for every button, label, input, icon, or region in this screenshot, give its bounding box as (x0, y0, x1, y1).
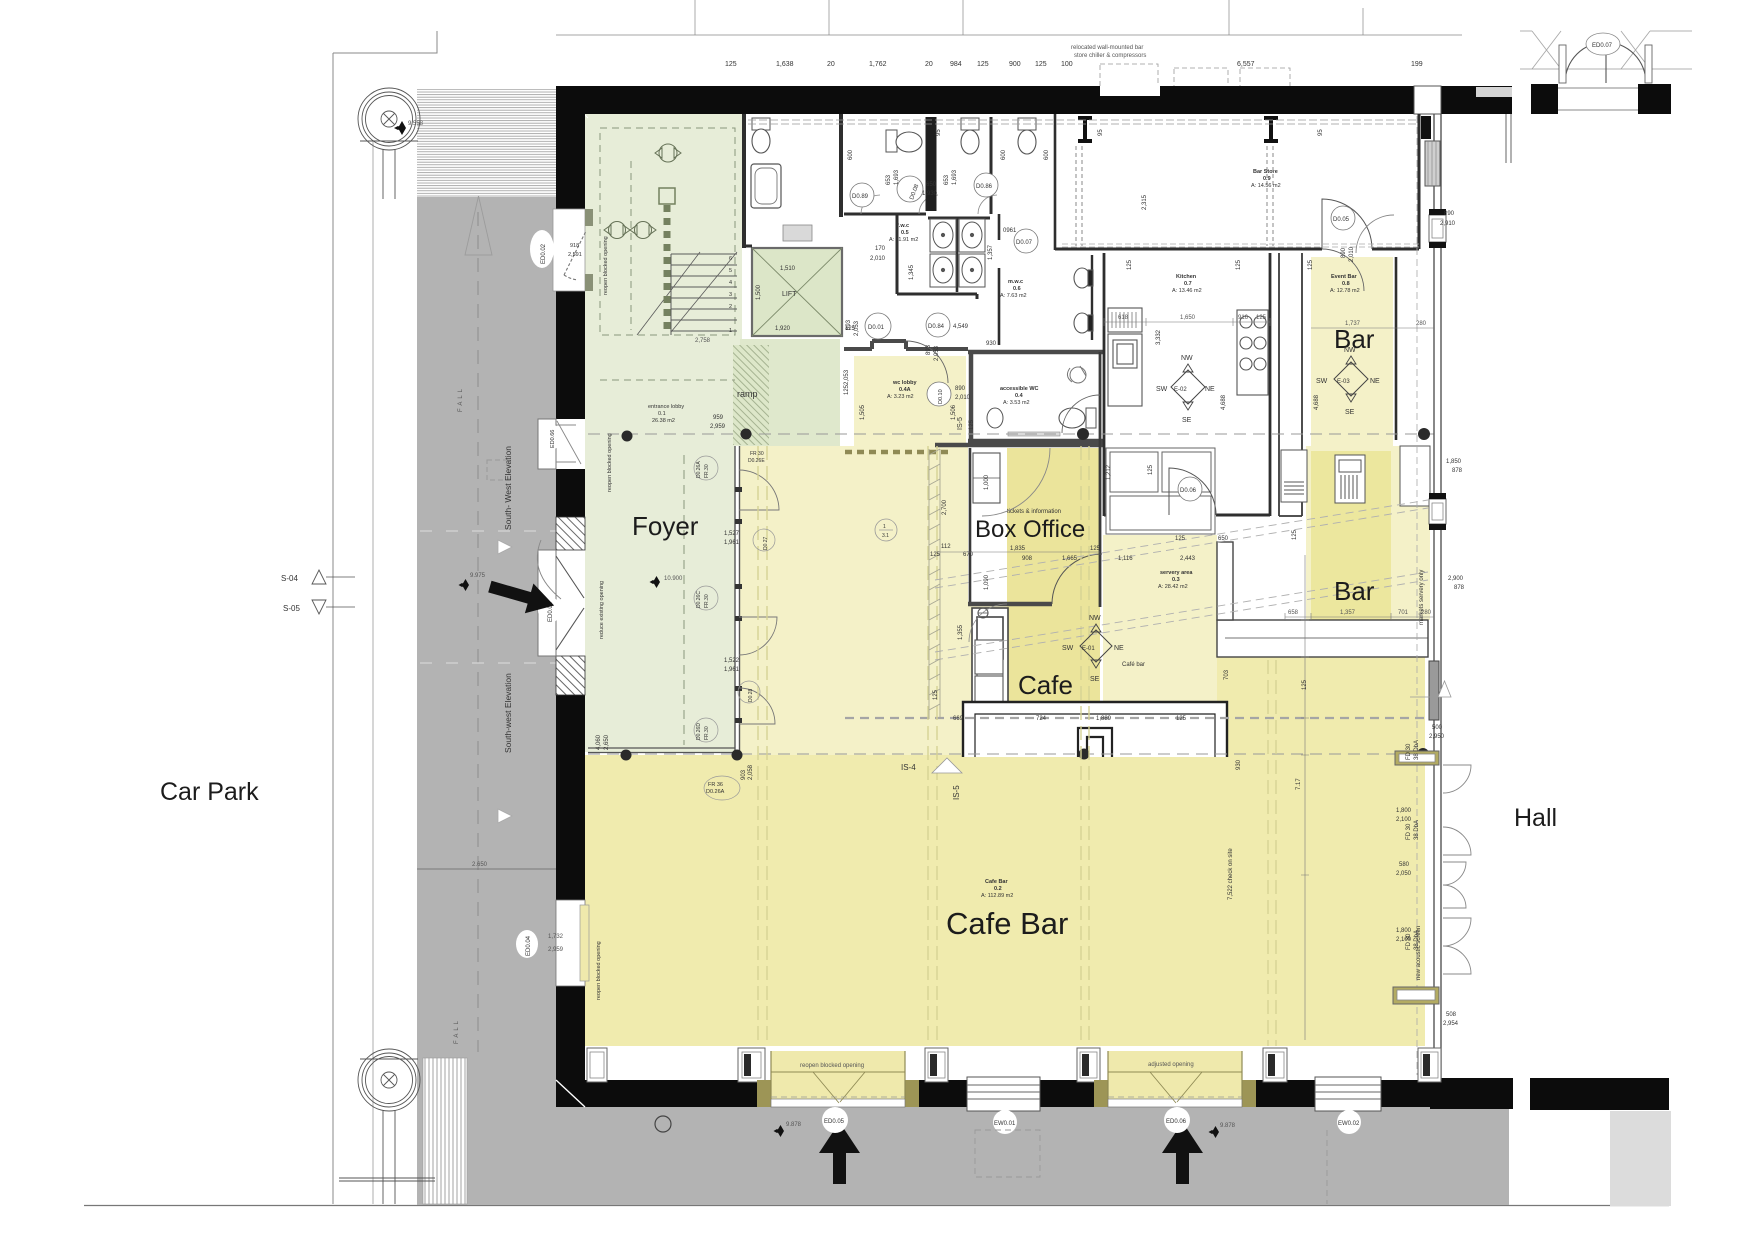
svg-text:280: 280 (1421, 610, 1432, 616)
svg-text:f.w.c: f.w.c (897, 223, 909, 229)
svg-text:2.650: 2.650 (472, 862, 488, 868)
svg-text:6: 6 (729, 256, 732, 262)
svg-text:D0.26A: D0.26A (706, 789, 725, 795)
svg-text:FR 36: FR 36 (708, 782, 723, 788)
svg-text:FALL: FALL (458, 386, 464, 412)
svg-text:890: 890 (1341, 247, 1347, 258)
svg-text:Café bar: Café bar (1122, 662, 1145, 668)
svg-text:6,557: 6,557 (1237, 61, 1255, 68)
svg-text:0.8: 0.8 (1342, 281, 1350, 287)
svg-text:IS-5: IS-5 (952, 785, 961, 800)
svg-text:2,443: 2,443 (1180, 556, 1196, 562)
svg-text:959: 959 (713, 415, 724, 421)
svg-text:1: 1 (883, 524, 886, 530)
svg-text:South-west Elevation: South-west Elevation (503, 673, 513, 753)
svg-text:entrance lobby: entrance lobby (648, 404, 684, 410)
svg-text:95: 95 (1098, 129, 1104, 136)
svg-text:A: 11.91 m2: A: 11.91 m2 (889, 237, 918, 243)
svg-text:280: 280 (1416, 321, 1427, 327)
svg-text:Car Park: Car Park (160, 778, 259, 806)
svg-text:2,910: 2,910 (1440, 221, 1456, 227)
svg-text:ED0.07: ED0.07 (1592, 43, 1613, 49)
svg-text:D0.89: D0.89 (852, 194, 869, 200)
svg-text:724: 724 (1036, 716, 1047, 722)
svg-text:S-04: S-04 (281, 574, 298, 583)
svg-text:10.900: 10.900 (664, 576, 683, 582)
svg-text:D0.06: D0.06 (1180, 488, 1197, 494)
svg-text:ED0.02: ED0.02 (541, 243, 547, 264)
svg-text:reduce existing opening: reduce existing opening (599, 581, 605, 639)
svg-text:0.1: 0.1 (658, 411, 666, 417)
svg-text:38 DbA: 38 DbA (1414, 820, 1420, 840)
svg-text:2,650: 2,650 (604, 734, 610, 750)
svg-text:E-02: E-02 (1174, 387, 1187, 393)
svg-text:125: 125 (1236, 259, 1242, 270)
svg-text:0.6: 0.6 (1013, 286, 1021, 292)
svg-text:D0.26A: D0.26A (696, 461, 702, 478)
svg-text:A: 7.63 m2: A: 7.63 m2 (1000, 293, 1027, 299)
svg-text:S-05: S-05 (283, 604, 300, 613)
svg-text:658: 658 (1288, 610, 1299, 616)
svg-text:500: 500 (1432, 725, 1443, 731)
svg-text:FR.30: FR.30 (704, 726, 710, 740)
svg-text:1,650: 1,650 (1180, 315, 1196, 321)
svg-text:new acoustic screen: new acoustic screen (1416, 926, 1422, 980)
svg-text:1,930: 1,930 (922, 191, 938, 197)
svg-text:4,060: 4,060 (596, 734, 602, 750)
svg-text:4: 4 (729, 280, 732, 286)
svg-text:EW0.02: EW0.02 (1338, 1121, 1360, 1127)
svg-text:878: 878 (1452, 468, 1463, 474)
svg-text:E-01: E-01 (1082, 646, 1095, 652)
svg-text:NW: NW (1344, 347, 1356, 354)
svg-text:wc lobby: wc lobby (892, 380, 917, 386)
svg-text:125: 125 (1292, 529, 1298, 540)
svg-text:A: 12.78 m2: A: 12.78 m2 (1330, 288, 1360, 294)
svg-text:1,500: 1,500 (756, 284, 762, 300)
svg-text:FR 30: FR 30 (750, 451, 764, 457)
svg-text:A: 3.53 m2: A: 3.53 m2 (1003, 400, 1030, 406)
svg-text:1,920: 1,920 (775, 326, 791, 332)
svg-text:Bar: Bar (1334, 576, 1375, 606)
svg-text:NE: NE (1370, 378, 1380, 385)
svg-text:0.4A: 0.4A (899, 387, 911, 393)
svg-text:9.878: 9.878 (786, 1122, 802, 1128)
svg-text:1,800: 1,800 (1396, 808, 1412, 814)
svg-text:reopen blocked opening: reopen blocked opening (800, 1063, 864, 1069)
svg-text:2,959: 2,959 (710, 424, 726, 430)
svg-text:D0.01: D0.01 (868, 325, 885, 331)
svg-text:650: 650 (926, 182, 937, 188)
svg-text:D0.86: D0.86 (976, 184, 993, 190)
svg-text:125: 125 (930, 552, 941, 558)
svg-text:125: 125 (977, 61, 989, 68)
svg-text:SW: SW (1062, 645, 1074, 652)
svg-text:SE: SE (1090, 676, 1100, 683)
svg-text:A: 28.42 m2: A: 28.42 m2 (1158, 584, 1188, 590)
svg-text:2,010: 2,010 (870, 256, 886, 262)
svg-text:125: 125 (933, 689, 939, 700)
svg-text:900: 900 (1009, 61, 1021, 68)
svg-text:1,506: 1,506 (951, 404, 957, 420)
svg-text:E-03: E-03 (1337, 379, 1350, 385)
svg-text:1,527: 1,527 (724, 531, 740, 537)
svg-text:703: 703 (1224, 669, 1230, 680)
svg-text:FALL: FALL (454, 1018, 460, 1044)
svg-text:FD 30: FD 30 (1406, 823, 1412, 840)
svg-text:2,758: 2,758 (695, 338, 711, 344)
svg-text:125: 125 (1176, 716, 1187, 722)
svg-text:2,900: 2,900 (1448, 576, 1464, 582)
svg-text:125: 125 (969, 419, 975, 430)
svg-text:1: 1 (729, 328, 732, 334)
svg-text:903: 903 (741, 769, 747, 780)
svg-text:servery area: servery area (1160, 570, 1193, 576)
svg-text:7,522 check on site: 7,522 check on site (1228, 848, 1234, 900)
svg-text:600: 600 (1001, 149, 1007, 160)
svg-text:2,058: 2,058 (748, 764, 754, 780)
svg-text:Cafe Bar: Cafe Bar (985, 879, 1008, 885)
svg-text:1,693: 1,693 (952, 169, 958, 185)
svg-text:Bar Store: Bar Store (1253, 169, 1278, 175)
svg-text:D0.26D: D0.26D (696, 723, 702, 740)
svg-text:125: 125 (1308, 259, 1314, 270)
svg-text:D0.84: D0.84 (928, 324, 945, 330)
svg-text:95: 95 (936, 129, 942, 136)
svg-text:0961: 0961 (1003, 228, 1017, 234)
svg-text:1,116: 1,116 (1118, 556, 1133, 562)
svg-text:Cafe: Cafe (1018, 670, 1073, 700)
svg-text:893: 893 (846, 319, 852, 330)
svg-text:916: 916 (1238, 315, 1249, 321)
svg-text:890: 890 (1444, 211, 1455, 217)
svg-text:1,000: 1,000 (984, 474, 990, 490)
svg-text:NE: NE (1114, 645, 1124, 652)
svg-text:IS-4: IS-4 (901, 763, 916, 772)
svg-text:125: 125 (1148, 464, 1154, 475)
svg-text:SE: SE (1182, 417, 1192, 424)
svg-text:A: 14.56 m2: A: 14.56 m2 (1251, 183, 1281, 189)
svg-text:m.w.c: m.w.c (1008, 279, 1023, 285)
svg-text:5: 5 (729, 268, 732, 274)
svg-text:26.38 m2: 26.38 m2 (652, 418, 675, 424)
svg-text:relocated wall-mounted bar: relocated wall-mounted bar (1071, 45, 1143, 51)
svg-text:Event Bar: Event Bar (1331, 274, 1358, 280)
svg-text:Box Office: Box Office (975, 516, 1085, 543)
svg-text:1,961: 1,961 (724, 667, 740, 673)
svg-text:1,505: 1,505 (860, 404, 866, 420)
svg-text:170: 170 (875, 246, 886, 252)
svg-text:125: 125 (725, 61, 737, 68)
svg-text:1,732: 1,732 (548, 934, 564, 940)
svg-text:1,961: 1,961 (724, 540, 740, 546)
svg-text:NE: NE (1205, 386, 1215, 393)
svg-text:95: 95 (1318, 129, 1324, 136)
svg-text:FR.30: FR.30 (704, 464, 710, 478)
svg-text:NW: NW (1181, 355, 1193, 362)
svg-text:ramp: ramp (737, 389, 758, 399)
svg-text:984: 984 (950, 61, 962, 68)
svg-text:930: 930 (1236, 759, 1242, 770)
svg-text:accessible WC: accessible WC (1000, 386, 1039, 392)
svg-text:701: 701 (1398, 610, 1409, 616)
svg-text:4,549: 4,549 (953, 324, 969, 330)
svg-text:9.558: 9.558 (408, 121, 424, 127)
svg-text:D0.07: D0.07 (1016, 240, 1033, 246)
svg-text:EW0.01: EW0.01 (994, 1121, 1016, 1127)
svg-text:1,355: 1,355 (958, 624, 964, 640)
svg-text:0.7: 0.7 (1184, 281, 1192, 287)
svg-text:908: 908 (1022, 556, 1033, 562)
svg-text:2,010: 2,010 (955, 395, 971, 401)
svg-text:893: 893 (926, 344, 932, 355)
svg-text:2: 2 (729, 304, 732, 310)
svg-text:38 DbA: 38 DbA (1414, 740, 1420, 760)
svg-text:NW: NW (1089, 615, 1101, 622)
svg-text:1,737: 1,737 (1345, 321, 1361, 327)
svg-text:South- West Elevation: South- West Elevation (503, 446, 513, 530)
svg-text:1,693: 1,693 (894, 169, 900, 185)
svg-text:reopen blocked opening: reopen blocked opening (607, 433, 613, 492)
svg-text:D0.27: D0.27 (763, 536, 769, 550)
svg-text:1,357: 1,357 (988, 244, 994, 260)
svg-text:0.3: 0.3 (1172, 577, 1180, 583)
svg-text:3,332: 3,332 (1156, 329, 1162, 345)
svg-text:Hall: Hall (1514, 804, 1557, 832)
svg-text:SW: SW (1156, 386, 1168, 393)
svg-text:FR.30: FR.30 (704, 594, 710, 608)
svg-text:2,100: 2,100 (1396, 817, 1412, 823)
svg-text:SW: SW (1316, 378, 1328, 385)
svg-text:199: 199 (1411, 61, 1423, 68)
svg-text:1,345: 1,345 (909, 264, 915, 280)
svg-text:1,357: 1,357 (1340, 610, 1356, 616)
svg-text:1,638: 1,638 (776, 61, 794, 68)
svg-text:A: 112.89 m2: A: 112.89 m2 (981, 893, 1013, 899)
svg-text:1,850: 1,850 (1446, 459, 1462, 465)
svg-text:SE: SE (1345, 409, 1355, 416)
svg-text:100: 100 (1061, 61, 1073, 68)
svg-text:670: 670 (963, 552, 974, 558)
svg-text:2,591: 2,591 (568, 252, 582, 258)
svg-text:Foyer: Foyer (632, 511, 699, 541)
svg-text:1,522: 1,522 (724, 658, 740, 664)
svg-text:2,053: 2,053 (854, 320, 860, 336)
svg-text:580: 580 (1399, 862, 1410, 868)
svg-text:4,688: 4,688 (1314, 394, 1320, 410)
svg-text:0.2: 0.2 (994, 886, 1002, 892)
svg-text:3.1: 3.1 (882, 533, 889, 539)
svg-text:2,954: 2,954 (1443, 1021, 1459, 1027)
svg-text:A: 13.46 m2: A: 13.46 m2 (1172, 288, 1202, 294)
svg-text:112: 112 (941, 544, 951, 550)
svg-text:Kitchen: Kitchen (1176, 274, 1197, 280)
svg-text:618: 618 (1118, 315, 1129, 321)
svg-text:1,510: 1,510 (780, 266, 796, 272)
svg-text:adjusted opening: adjusted opening (1148, 1062, 1194, 1068)
svg-text:reopen blocked opening: reopen blocked opening (596, 941, 602, 1000)
svg-text:669: 669 (953, 716, 964, 722)
svg-text:4,688: 4,688 (1221, 394, 1227, 410)
svg-text:1252,053: 1252,053 (844, 369, 850, 395)
svg-text:878: 878 (1454, 585, 1465, 591)
svg-text:D0.10: D0.10 (938, 389, 944, 404)
svg-text:ED0.05: ED0.05 (824, 1119, 845, 1125)
svg-text:FD 30: FD 30 (1406, 743, 1412, 760)
svg-text:125: 125 (1302, 679, 1308, 690)
svg-text:IS-5: IS-5 (957, 417, 964, 430)
svg-text:125: 125 (1175, 536, 1186, 542)
svg-text:2,315: 2,315 (1142, 194, 1148, 210)
svg-text:D0.05: D0.05 (1333, 217, 1350, 223)
svg-text:0.4: 0.4 (1015, 393, 1024, 399)
svg-text:9.975: 9.975 (470, 573, 486, 579)
svg-text:508: 508 (1446, 1012, 1457, 1018)
svg-text:125: 125 (1035, 61, 1047, 68)
svg-text:2,959: 2,959 (548, 947, 564, 953)
svg-text:1,762: 1,762 (869, 61, 887, 68)
svg-text:1,800: 1,800 (1396, 928, 1412, 934)
svg-text:918: 918 (570, 243, 579, 249)
svg-text:LIFT: LIFT (782, 291, 797, 298)
svg-text:FD 30: FD 30 (1406, 933, 1412, 950)
svg-text:2,010: 2,010 (1349, 246, 1355, 262)
svg-text:ED0.04: ED0.04 (526, 935, 532, 956)
svg-text:653: 653 (886, 174, 892, 185)
svg-text:600: 600 (848, 149, 854, 160)
svg-text:20: 20 (925, 61, 933, 68)
svg-text:3: 3 (729, 292, 732, 298)
svg-text:1,212: 1,212 (1106, 464, 1112, 480)
svg-text:9.878: 9.878 (1220, 1123, 1236, 1129)
svg-text:20: 20 (827, 61, 835, 68)
svg-text:A: 3.23 m2: A: 3.23 m2 (887, 394, 914, 400)
svg-text:1,665: 1,665 (1062, 556, 1078, 562)
svg-text:125: 125 (1127, 259, 1133, 270)
svg-text:7.17: 7.17 (1296, 778, 1302, 790)
svg-text:reopen blocked opening: reopen blocked opening (603, 236, 609, 295)
svg-text:890: 890 (955, 386, 966, 392)
svg-text:0.5: 0.5 (901, 230, 909, 236)
svg-text:D0.26C: D0.26C (696, 591, 702, 608)
svg-text:125: 125 (1090, 546, 1101, 552)
svg-text:1,090: 1,090 (984, 574, 990, 590)
svg-text:1,889: 1,889 (1096, 716, 1112, 722)
svg-text:2,700: 2,700 (942, 499, 948, 515)
svg-text:D0.28: D0.28 (748, 688, 754, 702)
svg-text:2,053: 2,053 (934, 345, 940, 361)
svg-text:650: 650 (1218, 536, 1229, 542)
svg-text:ED0.06: ED0.06 (1166, 1119, 1187, 1125)
svg-text:125: 125 (1256, 315, 1267, 321)
svg-text:Cafe Bar: Cafe Bar (946, 906, 1068, 941)
svg-text:653: 653 (944, 174, 950, 185)
svg-text:930: 930 (986, 341, 997, 347)
svg-text:D0.26E: D0.26E (748, 458, 765, 464)
svg-text:1,835: 1,835 (1010, 546, 1026, 552)
svg-text:store chiller & compressors: store chiller & compressors (1074, 53, 1146, 59)
svg-text:600: 600 (1044, 149, 1050, 160)
svg-text:ED0.66: ED0.66 (550, 430, 556, 448)
svg-text:tickets & information: tickets & information (1007, 509, 1061, 515)
svg-text:2,050: 2,050 (1396, 871, 1412, 877)
svg-text:2,950: 2,950 (1429, 734, 1445, 740)
